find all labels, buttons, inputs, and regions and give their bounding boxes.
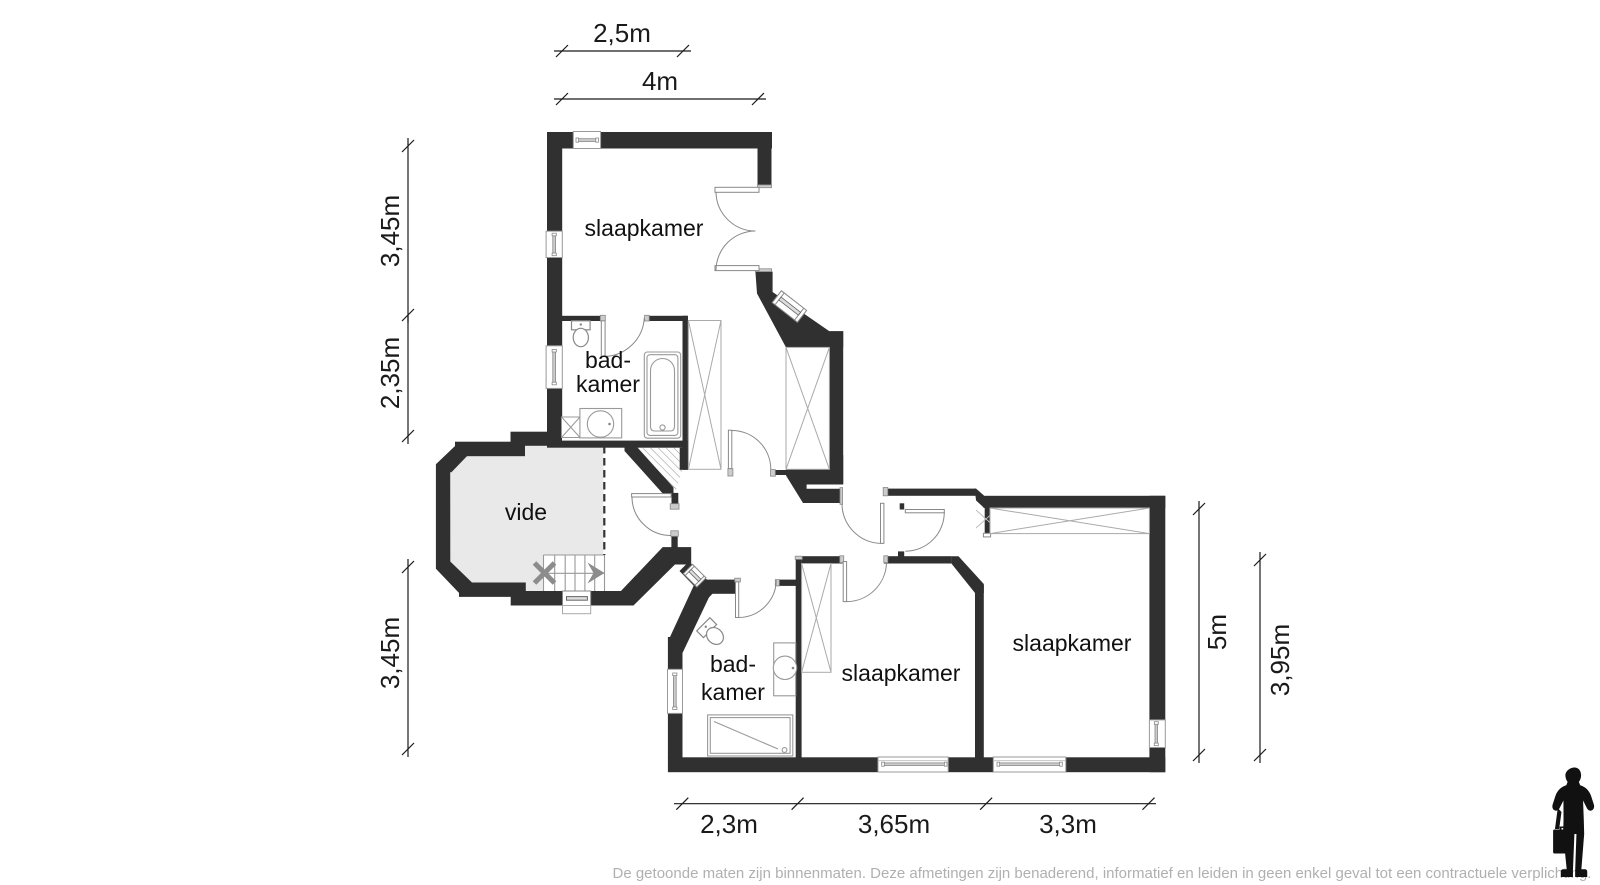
- svg-text:slaapkamer: slaapkamer: [842, 660, 961, 686]
- svg-text:2,35m: 2,35m: [375, 337, 405, 409]
- svg-text:slaapkamer: slaapkamer: [1013, 630, 1132, 656]
- svg-text:vide: vide: [505, 499, 547, 525]
- svg-text:3,45m: 3,45m: [375, 195, 405, 267]
- svg-text:3,65m: 3,65m: [858, 809, 930, 839]
- svg-text:3,45m: 3,45m: [375, 617, 405, 689]
- svg-text:De getoonde maten zijn binnenm: De getoonde maten zijn binnenmaten. Deze…: [613, 865, 1592, 882]
- svg-text:slaapkamer: slaapkamer: [585, 215, 704, 241]
- svg-text:kamer: kamer: [576, 371, 640, 397]
- svg-text:bad-: bad-: [710, 651, 756, 677]
- svg-text:kamer: kamer: [701, 679, 765, 705]
- svg-text:3,3m: 3,3m: [1039, 809, 1097, 839]
- svg-text:5m: 5m: [1202, 614, 1232, 650]
- svg-text:4m: 4m: [642, 66, 678, 96]
- svg-text:3,95m: 3,95m: [1265, 624, 1295, 696]
- svg-text:2,3m: 2,3m: [700, 809, 758, 839]
- svg-text:bad-: bad-: [585, 347, 631, 373]
- svg-text:2,5m: 2,5m: [593, 18, 651, 48]
